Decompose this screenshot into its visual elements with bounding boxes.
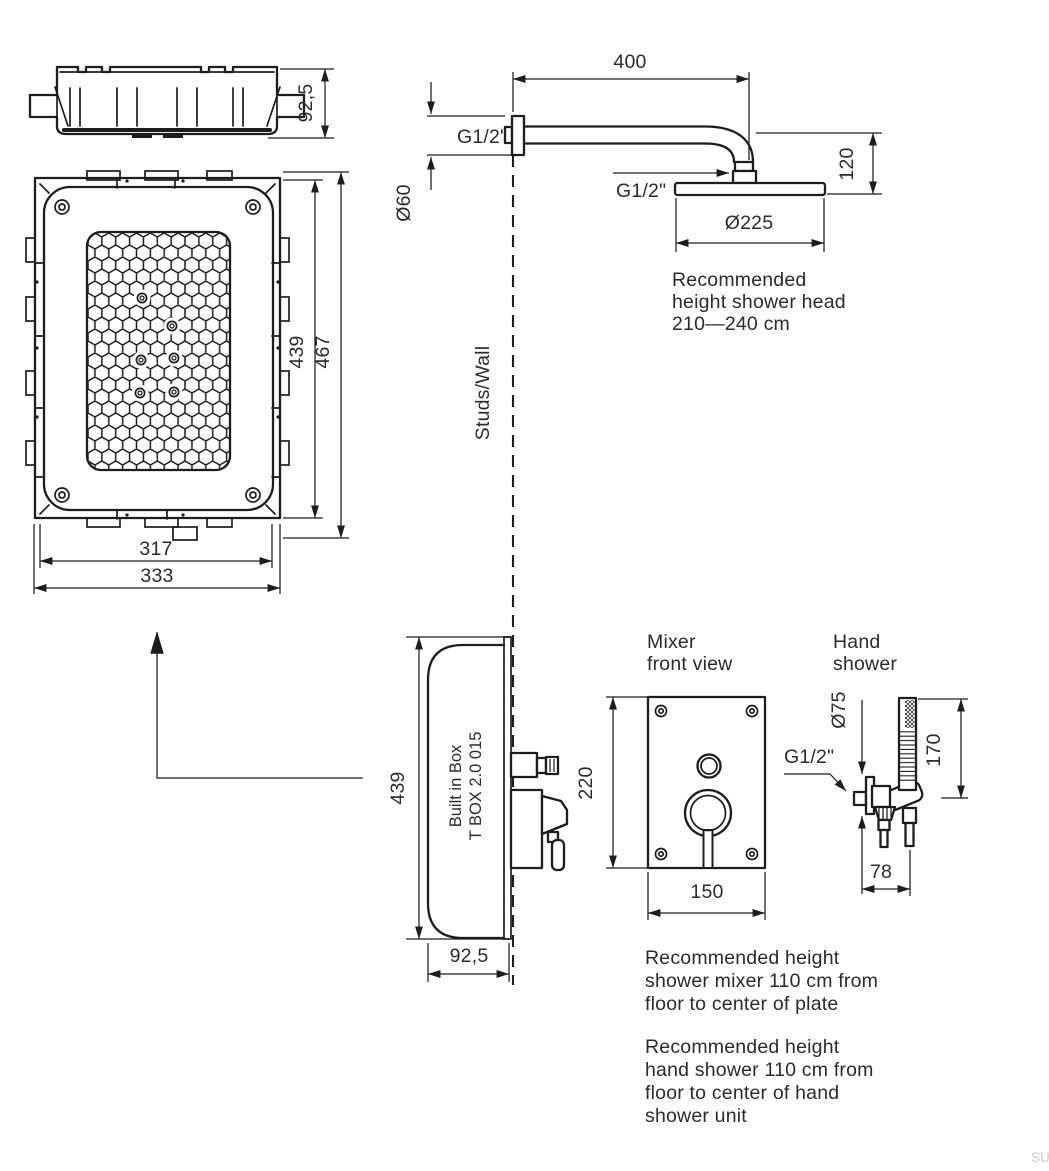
mixer-side-protrusions <box>511 753 567 870</box>
note-line: Recommended <box>672 269 806 291</box>
dim-label-mixer-height: 220 <box>575 766 597 799</box>
hand-shower-note-line: hand shower 110 cm from <box>645 1059 874 1081</box>
box-label-line1: Built in Box <box>447 744 465 827</box>
studs-wall-label: Studs/Wall <box>472 346 494 440</box>
technical-drawing-sheet: Studs/Wall 92,5 <box>0 0 1049 1171</box>
box-label-line2: T BOX 2.0 015 <box>467 732 485 841</box>
mixer-title-line1: Mixer <box>647 631 696 653</box>
drawing-svg: Studs/Wall 92,5 <box>0 0 1049 1171</box>
honeycomb-grille <box>87 232 230 470</box>
dim-side-depth: 92,5 <box>428 943 509 982</box>
hand-shower-note-line: floor to center of hand <box>645 1082 839 1104</box>
mixer-lever-side <box>552 840 564 870</box>
thread-label-head: G1/2" <box>616 180 666 202</box>
handle-knurl <box>905 700 915 728</box>
installation-notes: Recommended height shower mixer 110 cm f… <box>645 947 878 1127</box>
handle-ribs <box>900 731 915 781</box>
note-line: height shower head <box>672 291 846 313</box>
dim-mixer-height: 220 <box>575 697 648 868</box>
dim-label-outer-width: 333 <box>140 565 173 587</box>
dim-label-head-diameter: Ø225 <box>725 212 774 234</box>
dim-label-inner-width: 317 <box>139 538 172 560</box>
dim-arm-diameter: Ø60 <box>393 82 513 222</box>
mixer-lever-front <box>704 830 713 868</box>
supply-elbow <box>872 786 890 807</box>
hose-connector <box>906 823 914 846</box>
shower-head-note: Recommended height shower head 210—240 c… <box>672 269 846 335</box>
thread-supply-leader: G1/2" <box>784 746 846 791</box>
mixer-note-line: Recommended height <box>645 947 840 969</box>
shower-head-view: 400 G1/2" Ø60 G1/2" 120 Ø225 <box>393 51 882 335</box>
studs-wall-line: Studs/Wall <box>472 155 513 985</box>
box-bottom-connector <box>173 527 197 540</box>
dim-label-outer-height: 467 <box>312 335 334 368</box>
mixer-note-line: floor to center of plate <box>645 993 838 1015</box>
dim-wall-offset: 78 <box>862 850 910 896</box>
mixer-front-view: Mixer front view 220 150 <box>575 631 765 920</box>
dim-label-mixer-width: 150 <box>690 881 723 903</box>
mixer-note-line: shower mixer 110 cm from <box>645 970 878 992</box>
dim-label-side-depth: 92,5 <box>450 945 489 967</box>
dim-label-inner-height: 439 <box>286 335 308 368</box>
dim-label-box-depth: 92,5 <box>295 84 317 123</box>
wall-plate-edge <box>504 637 511 939</box>
dim-label-side-height: 439 <box>387 771 409 804</box>
built-in-box-front-view: 439 467 317 333 <box>26 171 349 594</box>
head-connector-lower <box>733 171 756 183</box>
dim-label-head-drop: 120 <box>836 147 858 180</box>
dim-label-wall-offset: 78 <box>870 861 892 883</box>
note-line: 210—240 cm <box>672 313 790 335</box>
dim-mixer-width: 150 <box>648 872 765 920</box>
head-connector-upper <box>735 162 753 171</box>
dim-label-unit-height: 170 <box>923 733 945 766</box>
built-in-box-top-view: 92,5 <box>30 67 334 138</box>
thread-label-wall: G1/2" <box>457 126 507 148</box>
hand-shower-view: Hand shower G1/2" Ø75 <box>784 631 968 896</box>
wall-flange <box>512 116 524 155</box>
dim-unit-height: 170 <box>918 699 968 798</box>
dim-label-arm-length: 400 <box>613 51 646 73</box>
dim-label-arm-diameter: Ø60 <box>393 184 415 221</box>
supply-square <box>854 792 866 805</box>
mixer-title-line2: front view <box>647 653 733 675</box>
watermark: SU <box>1031 1150 1049 1165</box>
hand-shower-title-line2: shower <box>833 653 897 675</box>
hand-shower-note-line: shower unit <box>645 1105 747 1127</box>
hand-shower-title-line1: Hand <box>833 631 880 653</box>
dim-label-plate-diameter: Ø75 <box>828 691 850 728</box>
thread-label-supply: G1/2" <box>784 746 834 768</box>
hand-shower-note-line: Recommended height <box>645 1036 840 1058</box>
outlet-aerator <box>875 807 895 820</box>
dim-head-diameter: Ø225 <box>676 198 824 252</box>
built-in-box-side-view: Built in Box T BOX 2.0 015 439 92,5 <box>387 637 567 982</box>
shower-head-disc <box>675 183 825 195</box>
front-view-leader-arrow <box>157 632 363 778</box>
